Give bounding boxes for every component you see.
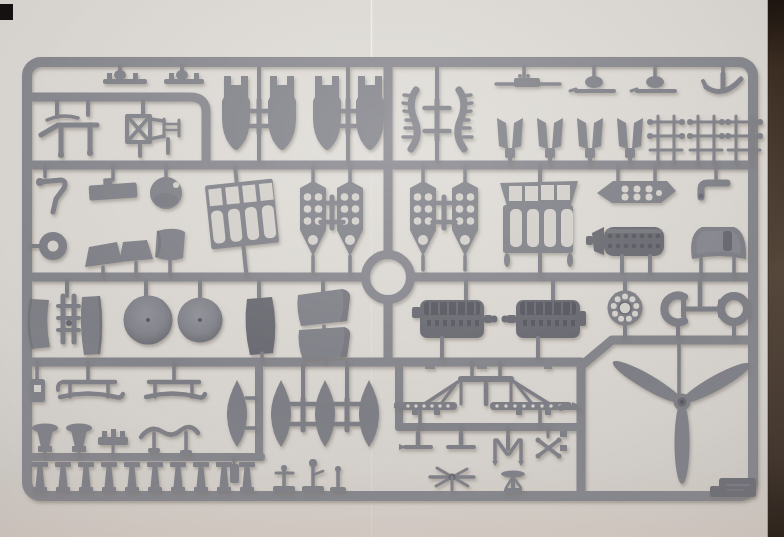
lighting-vignette xyxy=(0,0,784,537)
photo-of-model-kit-sprue xyxy=(0,0,784,537)
overlay-layer xyxy=(0,0,784,537)
sprue-photo-canvas xyxy=(0,0,784,537)
